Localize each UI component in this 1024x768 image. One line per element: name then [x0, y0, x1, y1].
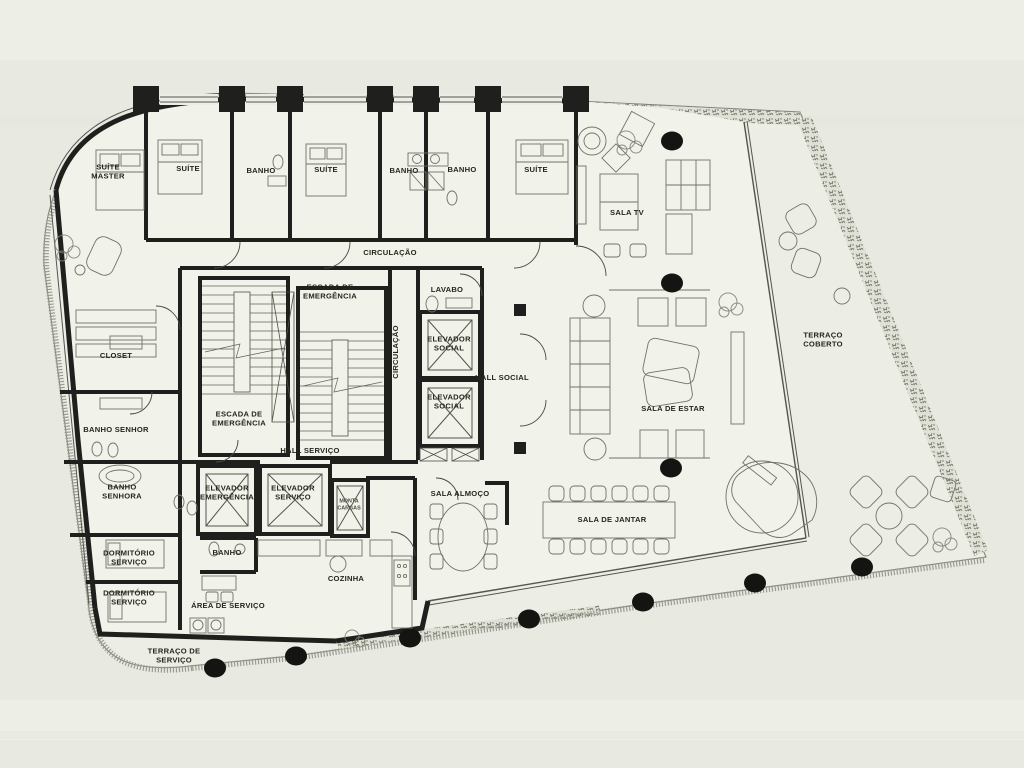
room-label-sala-almoco: SALA ALMOÇO [431, 489, 490, 498]
room-label-lavabo: LAVABO [431, 285, 463, 294]
room-label-banho-servico: BANHO [212, 548, 241, 557]
column-marker [518, 610, 540, 629]
room-label-banho-1: BANHO [246, 166, 275, 175]
room-label-circulacao: CIRCULAÇÃO [363, 248, 417, 257]
column-marker [661, 132, 683, 151]
room-label-terraco-coberto: TERRAÇOCOBERTO [803, 331, 843, 349]
room-label-circulacao-vertical: CIRCULAÇÃO [391, 325, 400, 379]
room-label-sala-de-jantar: SALA DE JANTAR [578, 515, 647, 524]
room-label-suite-4: SUÍTE [524, 165, 548, 174]
column-marker [632, 593, 654, 612]
column-marker [744, 574, 766, 593]
room-label-escada-emergencia-1: ESCADA DEEMERGÊNCIA [303, 283, 357, 301]
room-label-suite-3: SUÍTE [314, 165, 338, 174]
room-label-banho-3: BANHO [447, 165, 476, 174]
room-label-hall-servico: HALL SERVIÇO [280, 446, 339, 455]
column-marker [285, 647, 307, 666]
room-label-closet: CLOSET [100, 351, 132, 360]
column-marker [851, 558, 873, 577]
column-marker [660, 459, 682, 478]
room-label-hall-social: HALL SOCIAL [475, 373, 529, 382]
room-label-banho-senhora: BANHOSENHORA [102, 483, 142, 501]
room-label-area-de-servico: ÁREA DE SERVIÇO [191, 601, 265, 610]
room-label-monta-cargas: MONTACARGAS [337, 499, 361, 512]
room-label-banho-senhor: BANHO SENHOR [83, 425, 149, 434]
column-marker [204, 659, 226, 678]
room-label-sala-tv: SALA TV [610, 208, 645, 217]
room-label-banho-2: BANHO [389, 166, 418, 175]
column-marker [661, 274, 683, 293]
floor-plan-drawing: SUÍTEMASTERSUÍTEBANHOSUÍTEBANHOBANHOSUÍT… [0, 0, 1024, 768]
room-label-escada-emergencia-2: ESCADA DEEMERGÊNCIA [212, 410, 266, 428]
floor-plan-page: SUÍTEMASTERSUÍTEBANHOSUÍTEBANHOBANHOSUÍT… [0, 0, 1024, 768]
room-label-elevador-emergencia: ELEVADOREMERGÊNCIA [200, 484, 254, 502]
room-label-cozinha: COZINHA [328, 574, 365, 583]
column-marker [399, 629, 421, 648]
room-label-elevador-servico: ELEVADORSERVIÇO [271, 484, 315, 502]
room-label-sala-de-estar: SALA DE ESTAR [641, 404, 705, 413]
room-label-suite-2: SUÍTE [176, 164, 200, 173]
